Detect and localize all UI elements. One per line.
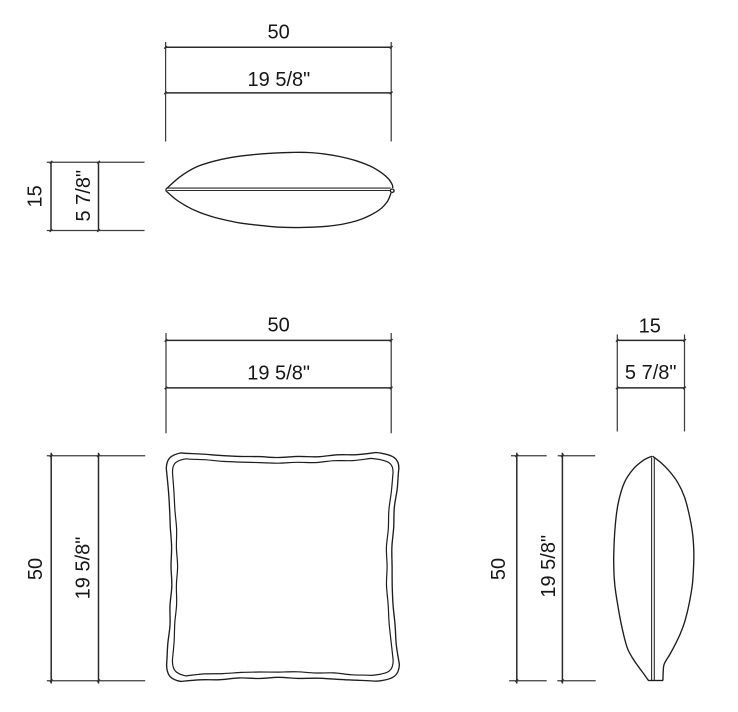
svg-text:19 5/8": 19 5/8": [247, 363, 310, 385]
svg-text:50: 50: [267, 314, 289, 336]
svg-text:50: 50: [488, 558, 510, 580]
svg-text:15: 15: [639, 316, 661, 338]
svg-text:50: 50: [267, 22, 289, 44]
svg-text:5 7/8": 5 7/8": [73, 170, 95, 222]
svg-text:5 7/8": 5 7/8": [625, 362, 677, 384]
svg-text:19 5/8": 19 5/8": [73, 537, 95, 600]
svg-text:50: 50: [25, 558, 47, 580]
svg-text:19 5/8": 19 5/8": [248, 69, 311, 91]
svg-text:19 5/8": 19 5/8": [538, 535, 560, 598]
svg-text:15: 15: [25, 185, 47, 207]
